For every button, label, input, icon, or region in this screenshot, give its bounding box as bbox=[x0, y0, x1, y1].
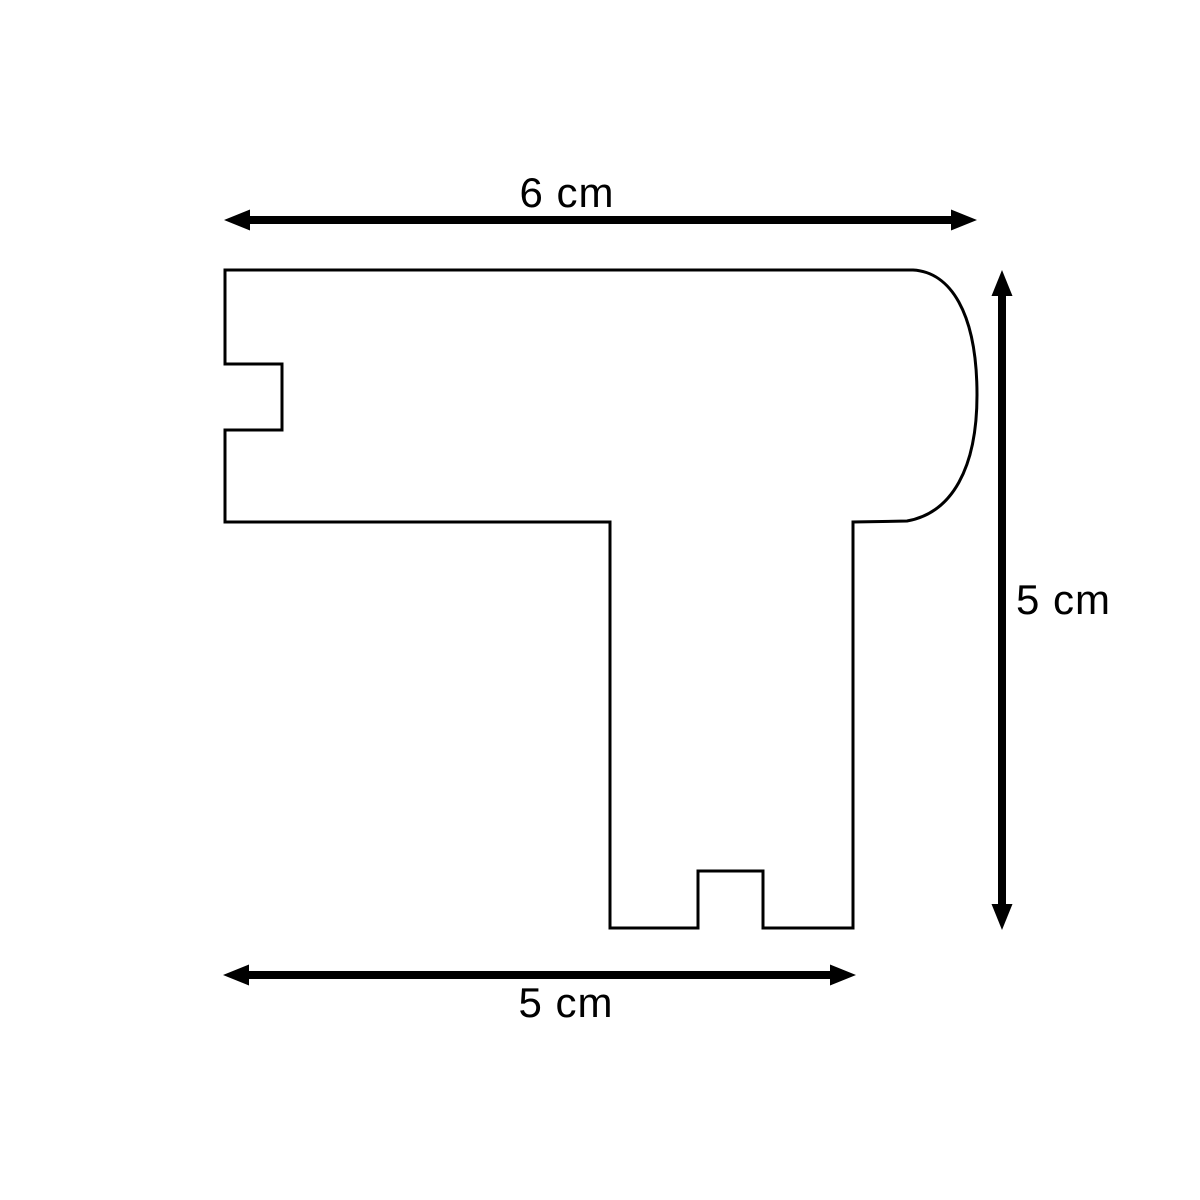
dimension-right: 5 cm bbox=[992, 270, 1112, 930]
arrowhead-left-icon bbox=[223, 965, 249, 986]
arrowhead-up-icon bbox=[992, 270, 1013, 296]
dimension-top: 6 cm bbox=[224, 169, 977, 231]
bottom-dimension-label: 5 cm bbox=[518, 979, 613, 1026]
dimension-bottom: 5 cm bbox=[223, 965, 856, 1027]
profile-diagram: 6 cm 5 cm 5 cm bbox=[0, 0, 1200, 1200]
diagram-canvas: 6 cm 5 cm 5 cm bbox=[0, 0, 1200, 1200]
profile-outline bbox=[225, 270, 977, 928]
arrowhead-right-icon bbox=[830, 965, 856, 986]
arrowhead-right-icon bbox=[951, 210, 977, 231]
top-dimension-label: 6 cm bbox=[519, 169, 614, 216]
right-dimension-label: 5 cm bbox=[1016, 576, 1111, 623]
arrowhead-left-icon bbox=[224, 210, 250, 231]
arrowhead-down-icon bbox=[992, 904, 1013, 930]
